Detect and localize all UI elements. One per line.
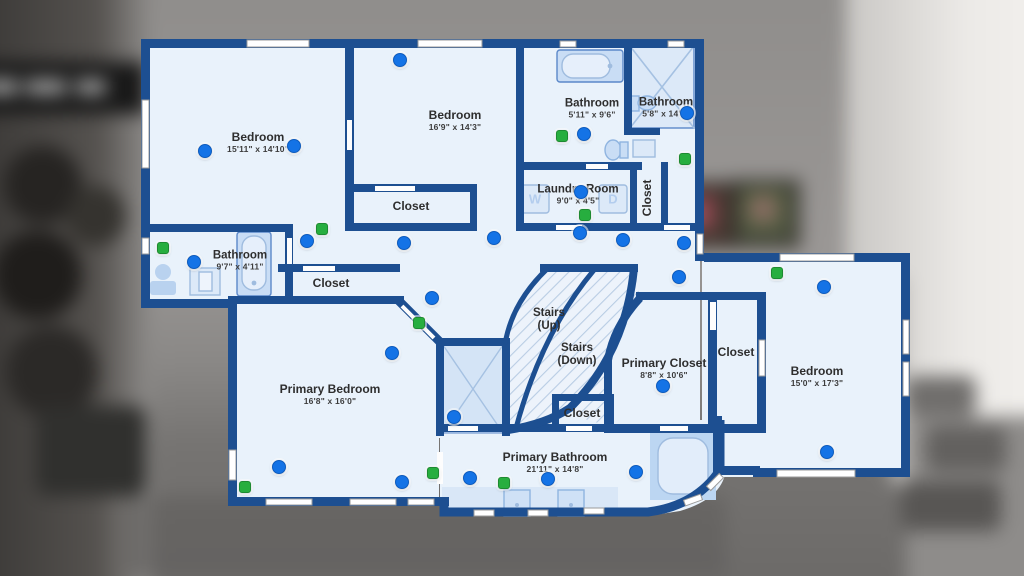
panorama-marker[interactable] <box>487 231 501 245</box>
panorama-marker[interactable] <box>541 472 555 486</box>
panorama-marker[interactable] <box>677 236 691 250</box>
panorama-marker[interactable] <box>616 233 630 247</box>
panorama-marker[interactable] <box>287 139 301 153</box>
waypoint-marker[interactable] <box>498 477 510 489</box>
waypoint-marker[interactable] <box>413 317 425 329</box>
panorama-marker[interactable] <box>656 379 670 393</box>
panorama-marker[interactable] <box>817 280 831 294</box>
waypoint-marker[interactable] <box>679 153 691 165</box>
panorama-marker[interactable] <box>680 106 694 120</box>
panorama-marker[interactable] <box>577 127 591 141</box>
dryer-icon: D <box>608 192 617 207</box>
panorama-marker[interactable] <box>272 460 286 474</box>
panorama-marker[interactable] <box>820 445 834 459</box>
panorama-marker[interactable] <box>187 255 201 269</box>
panorama-marker[interactable] <box>463 471 477 485</box>
washer-icon: W <box>529 192 541 207</box>
panorama-marker[interactable] <box>425 291 439 305</box>
panorama-marker[interactable] <box>397 236 411 250</box>
waypoint-marker[interactable] <box>427 467 439 479</box>
panorama-marker[interactable] <box>629 465 643 479</box>
panorama-marker[interactable] <box>385 346 399 360</box>
panorama-marker[interactable] <box>672 270 686 284</box>
waypoint-marker[interactable] <box>556 130 568 142</box>
waypoint-marker[interactable] <box>771 267 783 279</box>
panorama-marker[interactable] <box>447 410 461 424</box>
panorama-marker[interactable] <box>393 53 407 67</box>
panorama-marker[interactable] <box>573 226 587 240</box>
panorama-marker[interactable] <box>300 234 314 248</box>
panorama-marker[interactable] <box>574 185 588 199</box>
waypoint-marker[interactable] <box>239 481 251 493</box>
panorama-marker[interactable] <box>395 475 409 489</box>
waypoint-marker[interactable] <box>579 209 591 221</box>
floor-plan-svg <box>0 0 1024 576</box>
waypoint-marker[interactable] <box>157 242 169 254</box>
floor-plan-viewer: Bedroom 15'11" x 14'10" Bedroom 16'9" x … <box>0 0 1024 576</box>
waypoint-marker[interactable] <box>316 223 328 235</box>
panorama-marker[interactable] <box>198 144 212 158</box>
